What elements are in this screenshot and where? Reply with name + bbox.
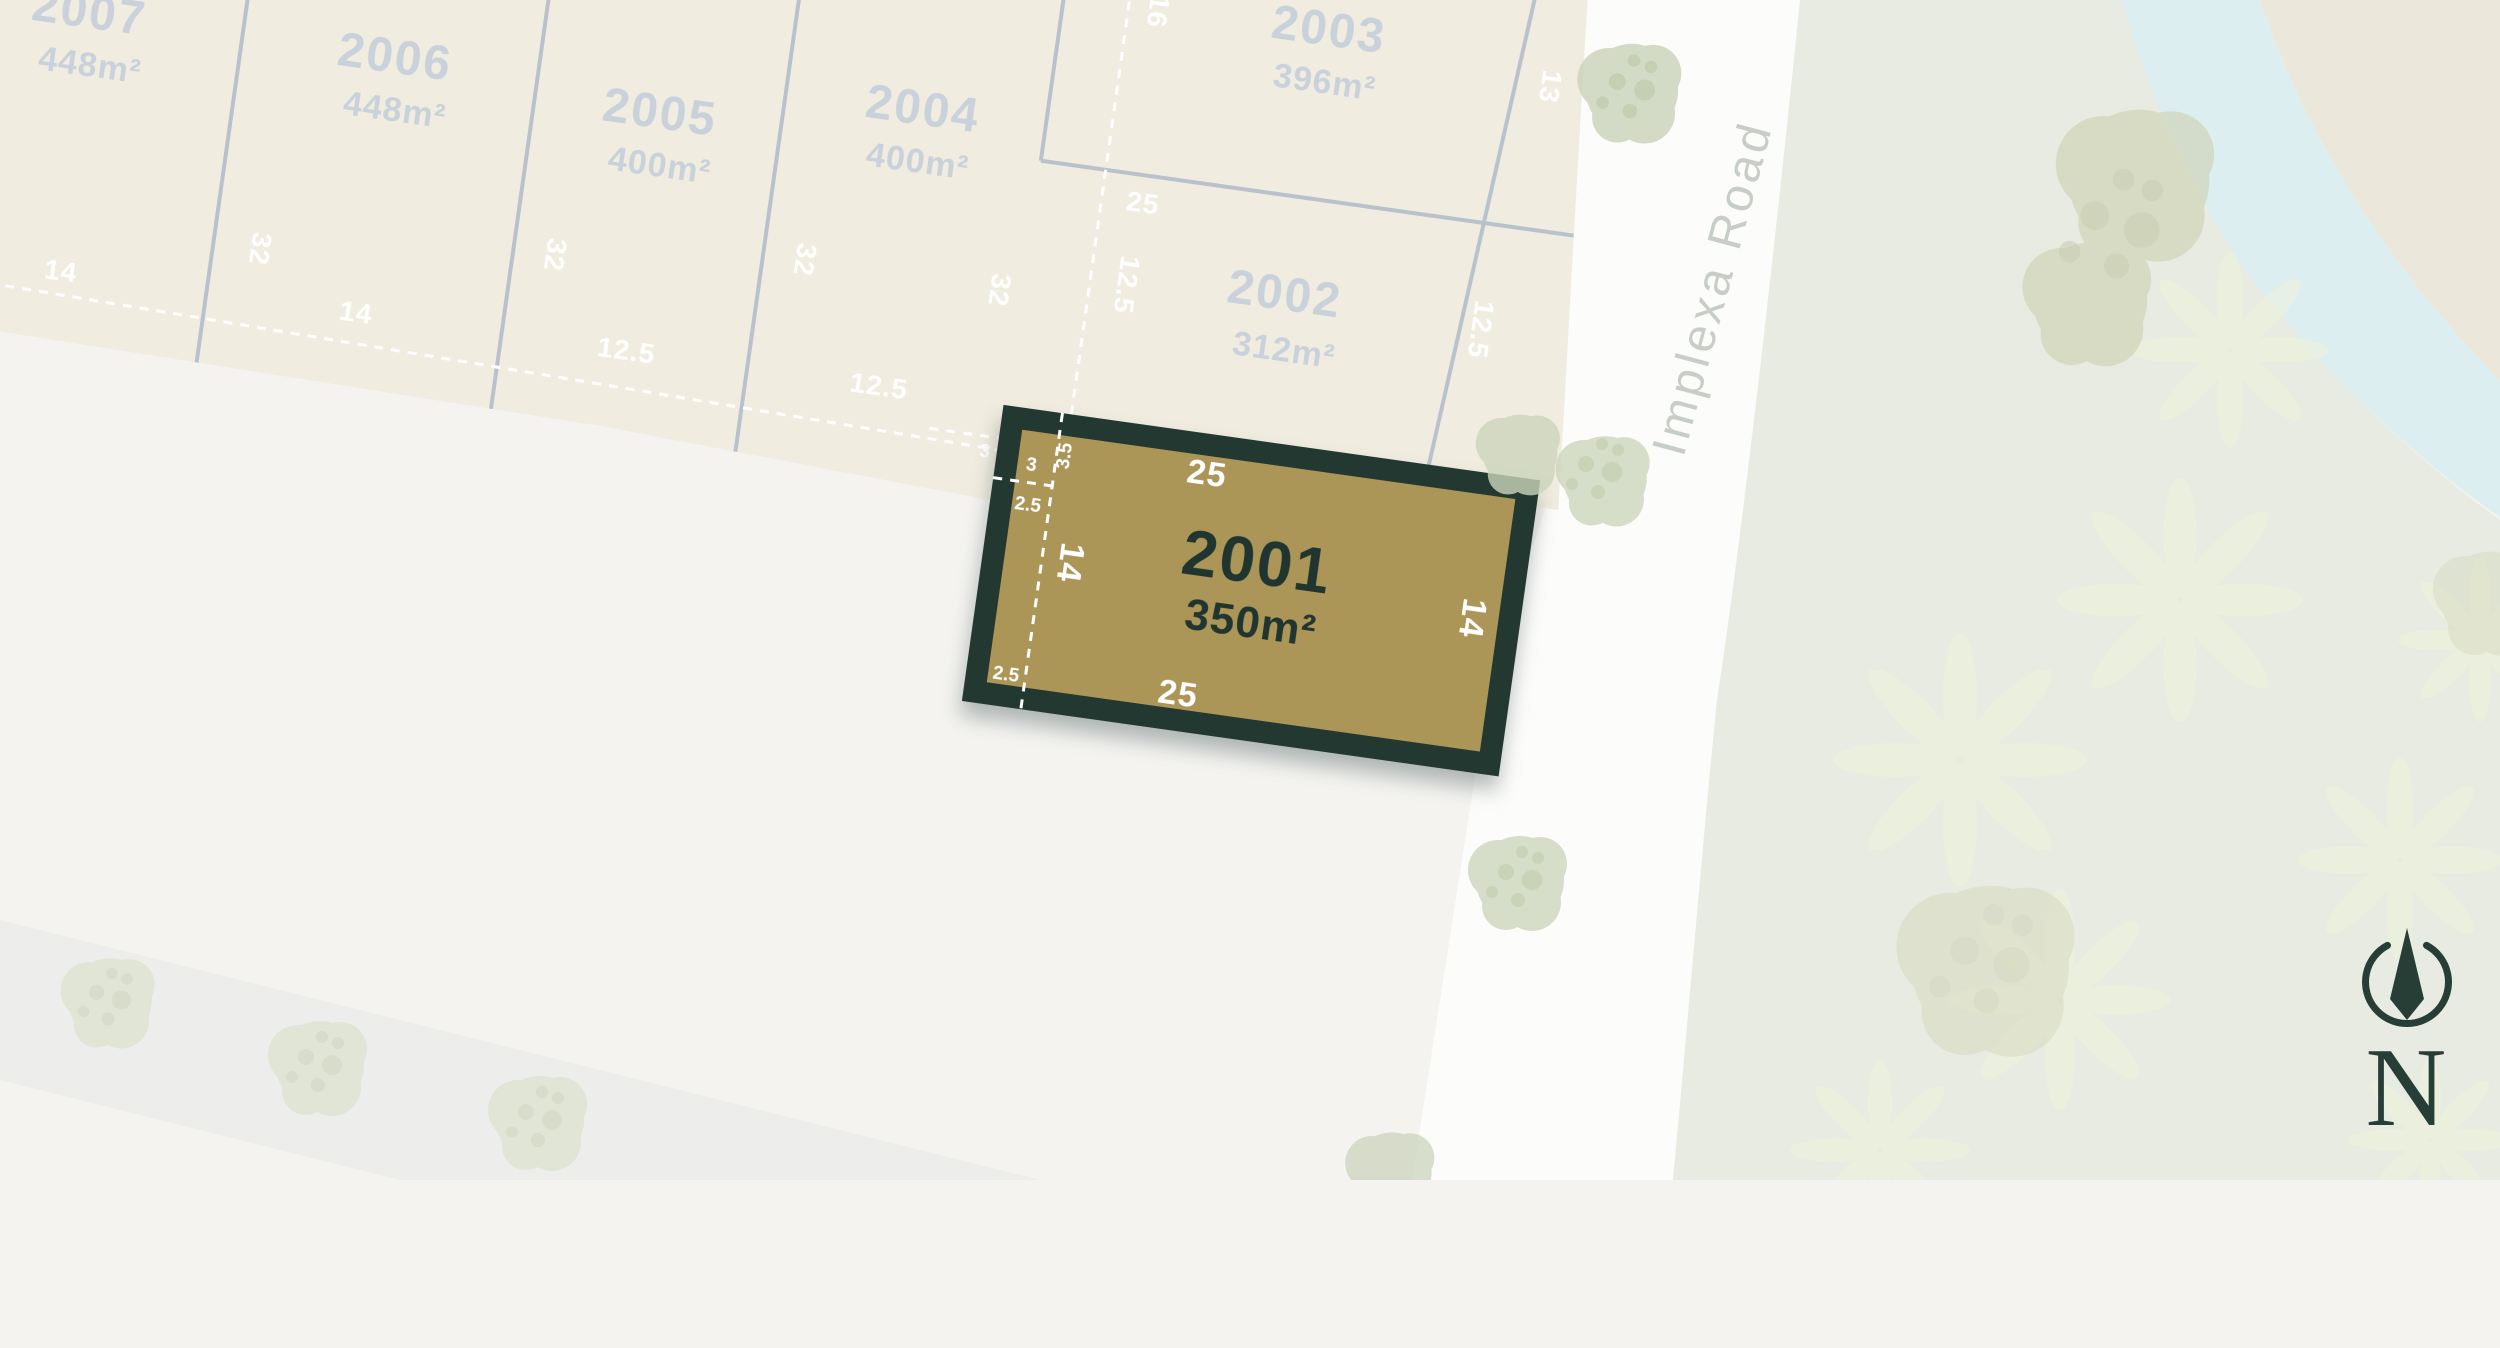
dim-lot2001-top: 25 [1185,454,1229,493]
dim-lot2003-frontage: 13 [1534,68,1566,105]
compass-north-label: N [2366,1032,2447,1144]
dim-lot2001-easement-width: 3 [1025,455,1038,475]
dim-frontage-2007: 14 [43,255,80,287]
dim-lot2001-offset-bottom: 2.5 [992,664,1021,686]
dim-lot2002-top: 25 [1125,187,1162,219]
dim-depth-2005: 32 [539,237,571,274]
lot2001-easement-dashed-h [993,476,1053,487]
dim-frontage-2006: 14 [338,297,375,329]
dim-lot2001-bottom: 25 [1156,674,1200,713]
dim-lot2001-easement-height: 3.5 [1054,442,1076,471]
dim-lot2001-right: 14 [1453,596,1492,640]
dim-depth-2003: 32 [983,272,1015,309]
dim-depth-2006: 32 [244,231,276,268]
dim-lot2003-rear: 16 [1142,0,1174,30]
dim-depth-2004: 32 [789,241,821,278]
subdivision-map: 2007 448m² 2006 448m² 2005 400m² 2004 40… [0,0,2500,1348]
dim-lot2002-rear: 12.5 [1108,254,1144,316]
dim-lot2001-offset-top: 2.5 [1013,494,1042,516]
dim-lot2002-frontage: 12.5 [1463,299,1499,361]
dim-lot2001-left: 14 [1051,541,1090,585]
